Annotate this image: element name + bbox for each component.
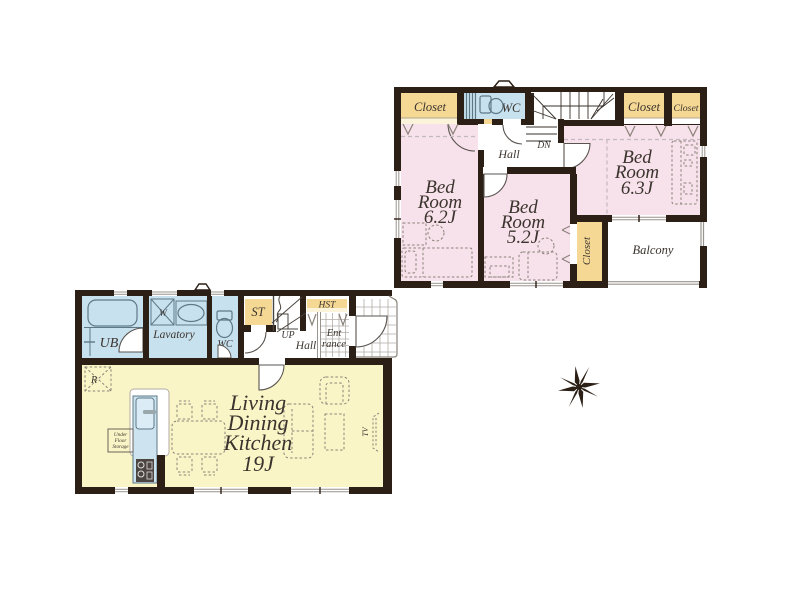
svg-text:6.2J: 6.2J bbox=[424, 207, 458, 228]
svg-text:HST: HST bbox=[318, 301, 337, 311]
svg-text:R: R bbox=[90, 375, 97, 386]
svg-text:Closet: Closet bbox=[628, 100, 660, 114]
svg-text:TV: TV bbox=[361, 426, 370, 436]
svg-text:UB: UB bbox=[100, 336, 119, 351]
svg-text:6.3J: 6.3J bbox=[621, 178, 655, 199]
svg-text:Lavatory: Lavatory bbox=[152, 329, 195, 341]
svg-text:Storage: Storage bbox=[112, 444, 129, 450]
svg-text:rance: rance bbox=[322, 339, 346, 350]
svg-text:DN: DN bbox=[536, 141, 551, 151]
svg-text:ST: ST bbox=[251, 305, 265, 319]
svg-text:19J: 19J bbox=[242, 451, 275, 476]
svg-text:UP: UP bbox=[281, 330, 294, 341]
svg-text:5.2J: 5.2J bbox=[507, 227, 541, 248]
svg-text:Ent: Ent bbox=[326, 328, 343, 339]
svg-text:Hall: Hall bbox=[497, 147, 520, 161]
svg-text:Closet: Closet bbox=[674, 104, 699, 114]
svg-text:Closet: Closet bbox=[581, 236, 593, 265]
svg-text:Hall: Hall bbox=[295, 340, 316, 352]
svg-text:Balcony: Balcony bbox=[633, 243, 674, 257]
svg-text:Closet: Closet bbox=[414, 100, 446, 114]
svg-text:WC: WC bbox=[502, 101, 521, 115]
